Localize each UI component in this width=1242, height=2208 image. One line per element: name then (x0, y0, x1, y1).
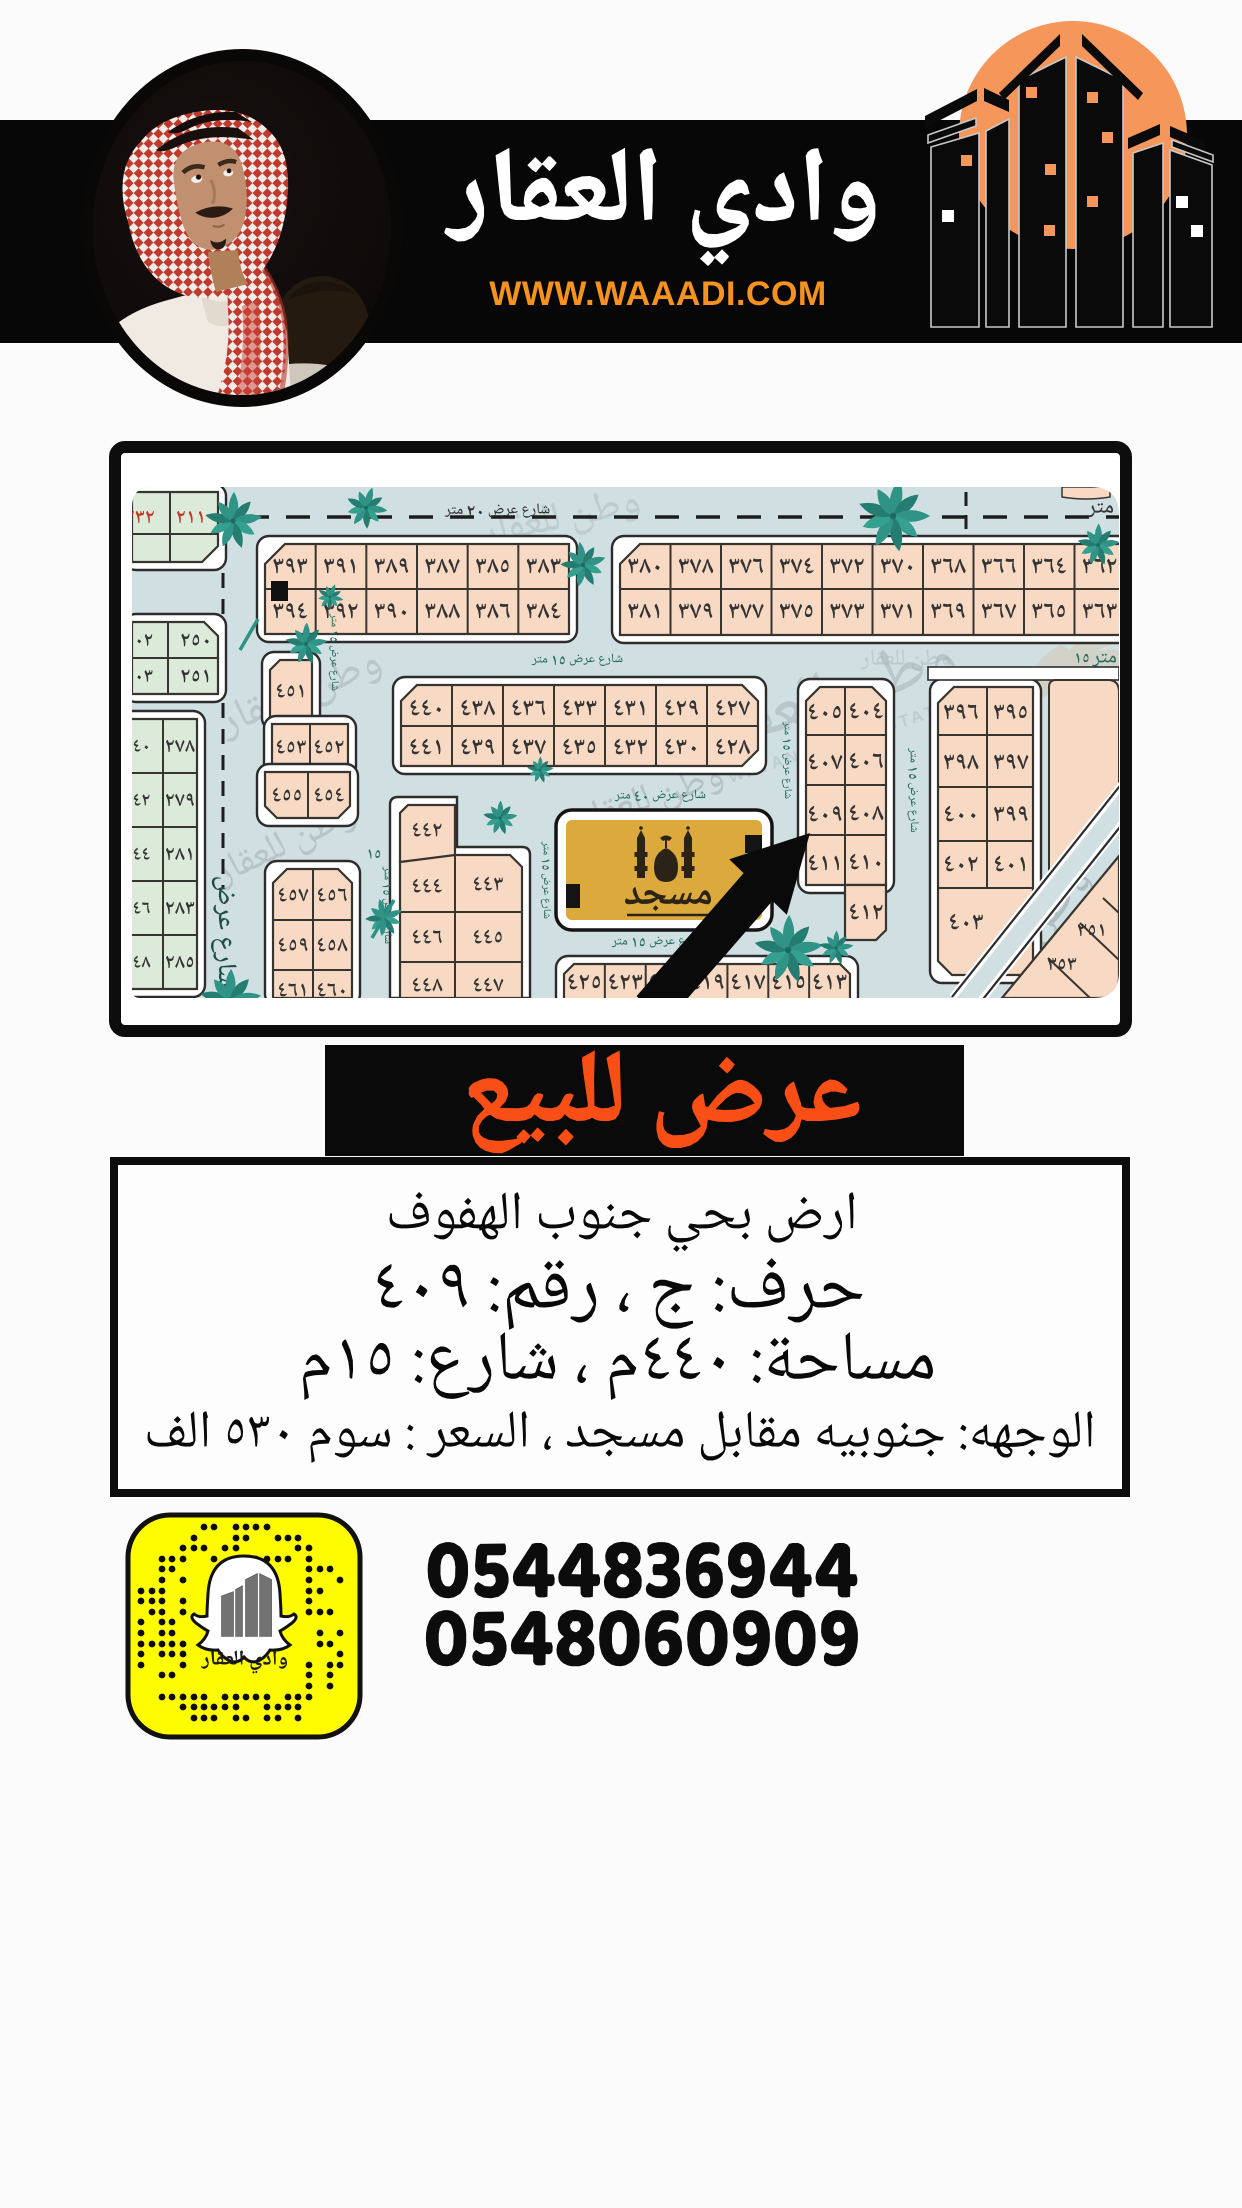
svg-text:WWW.WAAADI.COM: WWW.WAAADI.COM (489, 275, 827, 313)
